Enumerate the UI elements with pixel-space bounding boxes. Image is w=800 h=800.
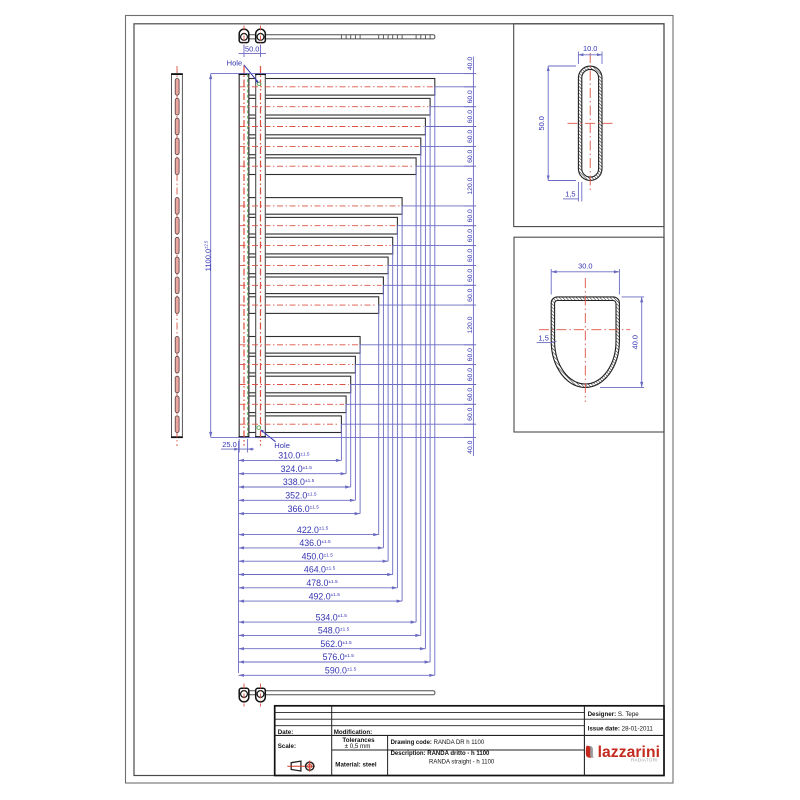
svg-text:Hole: Hole — [227, 59, 243, 68]
svg-text:40.0: 40.0 — [631, 335, 640, 349]
svg-text:60.0: 60.0 — [467, 130, 474, 143]
svg-text:50.0: 50.0 — [245, 44, 259, 53]
svg-text:1,5: 1,5 — [539, 333, 549, 342]
svg-text:60.0: 60.0 — [467, 90, 474, 103]
svg-text:60.0: 60.0 — [467, 348, 474, 361]
svg-text:60.0: 60.0 — [467, 149, 474, 162]
svg-text:60.0: 60.0 — [467, 288, 474, 301]
svg-text:40.0: 40.0 — [467, 57, 474, 70]
svg-text:Date:: Date: — [278, 729, 293, 736]
svg-text:RANDA straight - h 1100: RANDA straight - h 1100 — [429, 759, 495, 765]
svg-text:60.0: 60.0 — [467, 209, 474, 222]
svg-text:40.0: 40.0 — [467, 440, 474, 453]
svg-text:60.0: 60.0 — [467, 269, 474, 282]
svg-text:120.0: 120.0 — [467, 177, 474, 194]
svg-text:Modification:: Modification: — [334, 729, 373, 736]
svg-text:Material: steel: Material: steel — [335, 762, 377, 769]
svg-text:50.0: 50.0 — [537, 116, 546, 130]
svg-text:Scale:: Scale: — [278, 743, 296, 750]
svg-text:30.0: 30.0 — [578, 261, 592, 270]
svg-text:60.0: 60.0 — [467, 110, 474, 123]
svg-text:Description: RANDA dritto - h: Description: RANDA dritto - h 1100 — [391, 751, 490, 757]
svg-text:25.0: 25.0 — [222, 440, 236, 449]
svg-text:60.0: 60.0 — [467, 388, 474, 401]
svg-text:120.0: 120.0 — [467, 316, 474, 333]
svg-text:60.0: 60.0 — [467, 229, 474, 242]
svg-text:1,5: 1,5 — [565, 190, 575, 199]
svg-text:Drawing code: RANDA DR h 1100: Drawing code: RANDA DR h 1100 — [391, 740, 485, 746]
svg-text:10.0: 10.0 — [583, 44, 597, 53]
svg-text:60.0: 60.0 — [467, 249, 474, 262]
svg-text:Hole: Hole — [274, 441, 290, 450]
svg-text:RADIATORI: RADIATORI — [631, 757, 658, 762]
svg-text:60.0: 60.0 — [467, 368, 474, 381]
svg-text:± 0,5 mm: ± 0,5 mm — [345, 743, 371, 750]
svg-text:60.0: 60.0 — [467, 407, 474, 420]
svg-text:Issue date: 28-01-2011: Issue date: 28-01-2011 — [588, 725, 654, 732]
svg-text:Designer: S. Tepe: Designer: S. Tepe — [588, 711, 640, 718]
